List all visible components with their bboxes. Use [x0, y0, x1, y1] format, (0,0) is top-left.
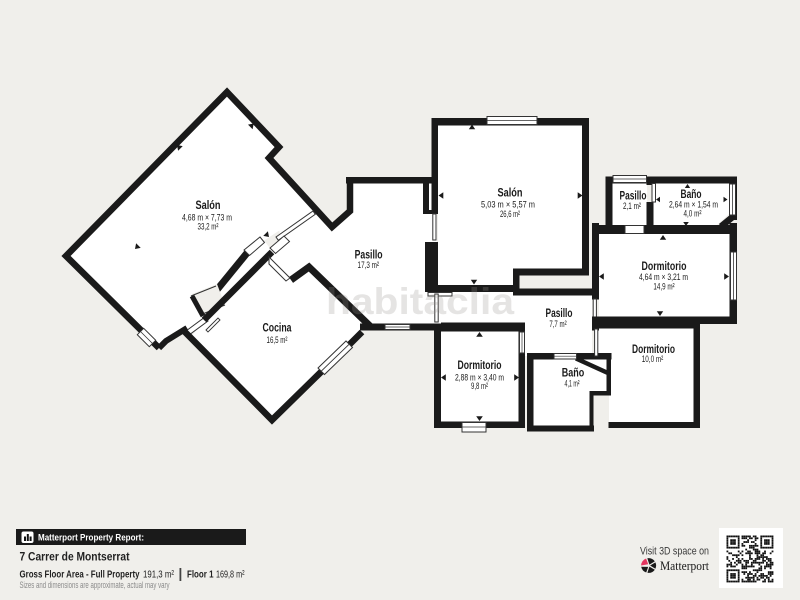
svg-text:Matterport: Matterport [660, 559, 709, 573]
svg-text:9,8 m²: 9,8 m² [471, 381, 488, 392]
svg-text:Visit 3D space on: Visit 3D space on [640, 546, 709, 558]
svg-text:14,9 m²: 14,9 m² [653, 282, 674, 293]
svg-text:4,1 m²: 4,1 m² [565, 379, 580, 390]
svg-text:Dormitorio: Dormitorio [642, 259, 687, 273]
svg-text:26,6 m²: 26,6 m² [500, 209, 520, 220]
svg-text:Dormitorio: Dormitorio [458, 358, 502, 372]
svg-text:10,0 m²: 10,0 m² [642, 354, 664, 365]
svg-text:4,0 m²: 4,0 m² [684, 209, 702, 220]
svg-text:Baño: Baño [562, 366, 585, 380]
svg-text:Sizes and dimensions are appro: Sizes and dimensions are approximate, ac… [20, 580, 170, 590]
svg-text:169,8 m²: 169,8 m² [216, 569, 245, 581]
svg-text:Salón: Salón [196, 198, 221, 212]
svg-text:Cocina: Cocina [263, 321, 292, 335]
svg-text:Pasillo: Pasillo [546, 306, 573, 320]
svg-text:Floor 1: Floor 1 [187, 569, 214, 581]
svg-text:17,3 m²: 17,3 m² [358, 260, 380, 271]
svg-text:16,5 m²: 16,5 m² [267, 335, 288, 346]
svg-text:Salón: Salón [498, 186, 523, 200]
svg-text:habitaclia: habitaclia [326, 281, 514, 322]
svg-text:7,7 m²: 7,7 m² [549, 319, 566, 330]
svg-text:191,3 m²: 191,3 m² [143, 569, 174, 581]
svg-text:Matterport Property Report:: Matterport Property Report: [38, 533, 144, 544]
svg-text:2,1 m²: 2,1 m² [623, 201, 641, 212]
svg-text:Gross Floor Area - Full Proper: Gross Floor Area - Full Property [20, 569, 140, 581]
svg-text:7 Carrer de Montserrat: 7 Carrer de Montserrat [20, 552, 130, 564]
svg-text:33,2 m²: 33,2 m² [198, 222, 219, 233]
